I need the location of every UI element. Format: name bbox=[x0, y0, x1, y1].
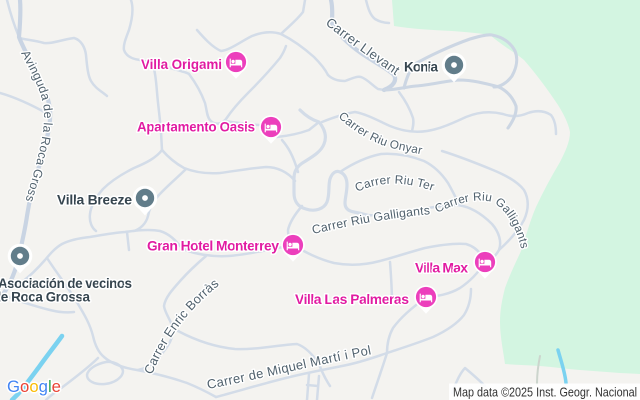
svg-text:Gran Hotel Monterrey: Gran Hotel Monterrey bbox=[147, 238, 279, 254]
svg-text:Apartamento Oasis: Apartamento Oasis bbox=[137, 120, 255, 135]
svg-text:de Roca Grossa: de Roca Grossa bbox=[0, 290, 90, 305]
svg-text:Villa Las Palmeras: Villa Las Palmeras bbox=[295, 291, 409, 307]
svg-text:Villa Origami: Villa Origami bbox=[141, 57, 222, 72]
svg-text:Map data ©2025 Inst. Geogr. Na: Map data ©2025 Inst. Geogr. Nacional bbox=[453, 386, 637, 400]
svg-text:Villa Max: Villa Max bbox=[415, 260, 468, 276]
svg-text:Konia: Konia bbox=[404, 60, 438, 75]
svg-text:Google: Google bbox=[7, 377, 61, 396]
svg-text:Villa Breeze: Villa Breeze bbox=[57, 192, 132, 208]
